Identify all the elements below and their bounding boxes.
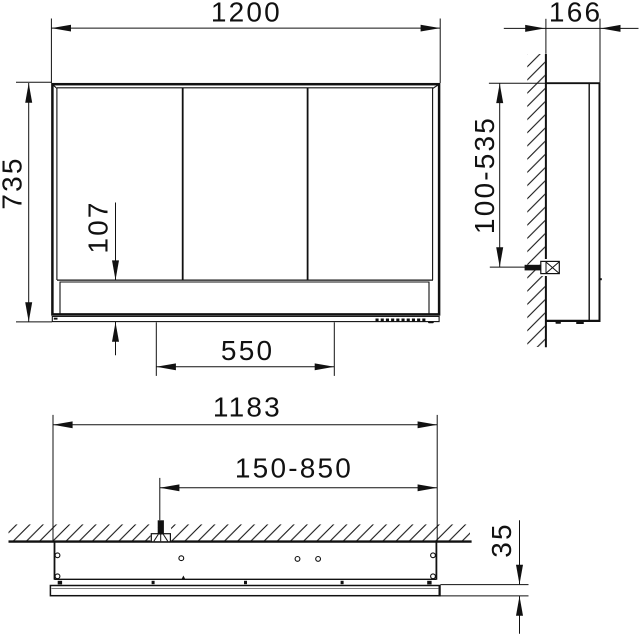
svg-text:1200: 1200 [211,0,282,27]
svg-text:166: 166 [549,0,602,28]
svg-text:100-535: 100-535 [469,116,500,234]
svg-text:35: 35 [486,522,517,558]
svg-text:735: 735 [0,156,27,209]
svg-text:1183: 1183 [213,392,282,423]
svg-text:550: 550 [221,335,274,366]
svg-text:150-850: 150-850 [235,452,353,483]
svg-text:107: 107 [83,200,114,253]
